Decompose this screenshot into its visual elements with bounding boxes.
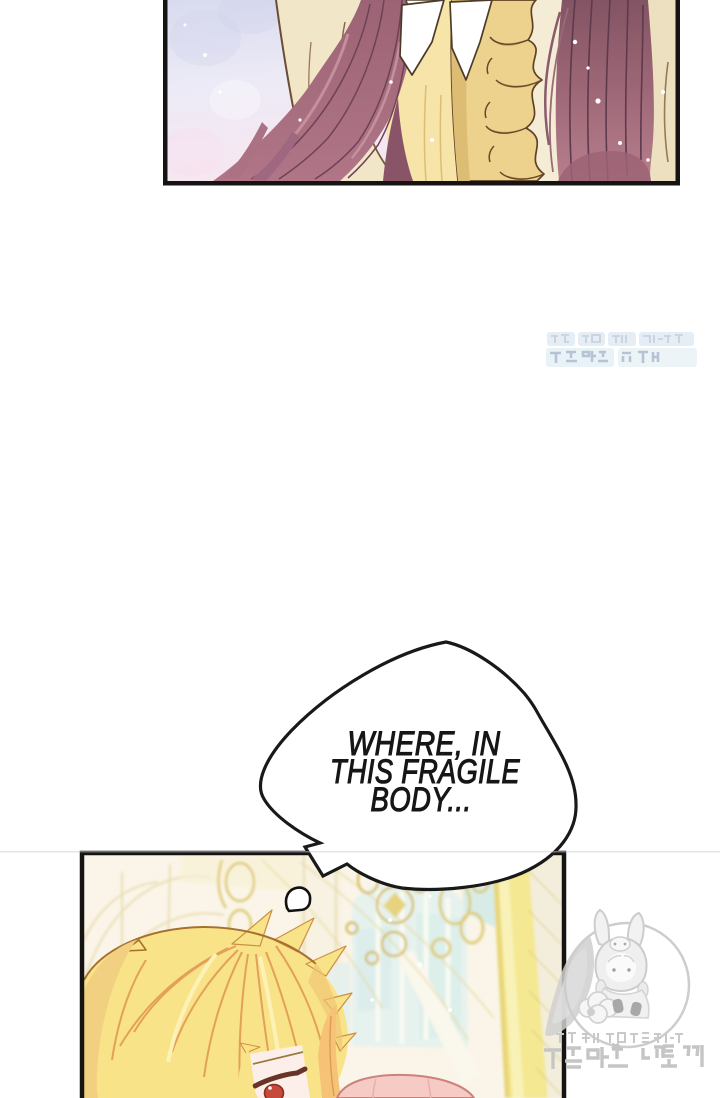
svg-text:BODY...: BODY...: [371, 781, 472, 819]
